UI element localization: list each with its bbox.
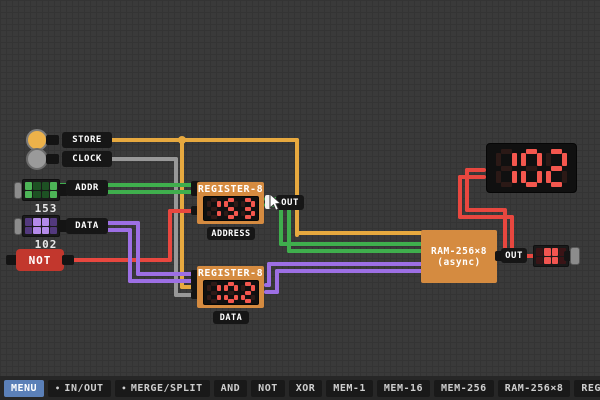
ram-title-line2: (async) [437, 257, 481, 268]
toolbar-button-xor[interactable]: XOR [289, 380, 323, 397]
wire-regout-bus[interactable] [279, 242, 423, 246]
toolbar-button-register-8[interactable]: REGISTER-8 [574, 380, 600, 397]
toolbar-button-ram-256-8[interactable]: RAM-256×8 [498, 380, 571, 397]
wire-data-bus[interactable] [128, 279, 199, 283]
bit-cell[interactable] [25, 191, 32, 199]
bit-cell [544, 257, 551, 265]
seven-seg-digit [207, 198, 221, 219]
toolbar-button-label: MEM-16 [384, 383, 423, 394]
toolbar-button-label: MEM-1 [333, 383, 366, 394]
toolbar-button-label: MENU [11, 383, 37, 394]
seven-seg-digit [521, 149, 542, 187]
bit-cell [536, 248, 543, 256]
bit-cell[interactable] [33, 227, 40, 235]
toolbar-button-in-out[interactable]: •IN/OUT [48, 380, 110, 397]
toolbar-button-label: XOR [296, 383, 316, 394]
toolbar-button-label: IN/OUT [64, 383, 103, 394]
bit-cell[interactable] [50, 191, 57, 199]
decimal-display[interactable] [486, 143, 577, 193]
data-side-pin[interactable] [14, 218, 22, 235]
collection-bullet-icon: • [55, 384, 60, 393]
wire-ram-out-riser[interactable] [465, 208, 505, 212]
bit-cell [544, 248, 551, 256]
wire-reg-to-ram-bus[interactable] [267, 262, 423, 266]
wire-ram-out-riser[interactable] [458, 175, 462, 219]
wire-regout-bus[interactable] [287, 249, 423, 253]
register-address-title: REGISTER-8 [197, 182, 264, 195]
wire-ram-out-riser[interactable] [458, 215, 514, 219]
ram-title-line1: RAM-256×8 [431, 246, 487, 257]
bit-cell[interactable] [33, 191, 40, 199]
data-bit-grid[interactable] [22, 215, 60, 237]
bit-cell[interactable] [50, 227, 57, 235]
store-label: STORE [62, 132, 112, 148]
bit-cell [552, 248, 559, 256]
not-gate[interactable]: NOT [16, 249, 64, 271]
addr-label: ADDR [66, 180, 108, 196]
toolbar-button-and[interactable]: AND [214, 380, 248, 397]
bit-cell[interactable] [33, 218, 40, 226]
toolbar-button-mem-16[interactable]: MEM-16 [377, 380, 430, 397]
seven-seg-digit [207, 282, 221, 303]
wire-store-branch[interactable] [180, 138, 184, 289]
seven-seg-digit [496, 149, 517, 187]
wire-junction[interactable] [178, 136, 186, 144]
store-pin[interactable] [46, 135, 59, 145]
register-data-caption: DATA [213, 311, 249, 324]
toolbar-button-mem-256[interactable]: MEM-256 [434, 380, 494, 397]
bit-cell[interactable] [42, 182, 49, 190]
seven-seg-digit [546, 149, 567, 187]
toolbar-button-not[interactable]: NOT [251, 380, 285, 397]
addr-value: 153 [24, 202, 68, 215]
toolbar-button-merge-split[interactable]: •MERGE/SPLIT [115, 380, 210, 397]
toolbar-button-label: AND [221, 383, 241, 394]
ram-out-label: OUT [501, 248, 527, 263]
bit-cell[interactable] [33, 182, 40, 190]
wire-store-main[interactable] [295, 138, 299, 237]
wire-data-bus[interactable] [136, 221, 140, 276]
wire-store-to-ram[interactable] [295, 231, 423, 235]
toolbar-button-mem-1[interactable]: MEM-1 [326, 380, 373, 397]
seven-seg-digit [224, 198, 238, 219]
bit-cell[interactable] [25, 182, 32, 190]
data-label: DATA [66, 218, 108, 234]
seven-seg-digit [241, 198, 255, 219]
logic-sim-canvas[interactable]: STORE CLOCK ADDR 153 DATA 102 NOT REGIST… [0, 0, 600, 400]
collection-bullet-icon: • [122, 384, 127, 393]
wire-data-bus[interactable] [128, 228, 132, 283]
ram-chip[interactable]: RAM-256×8 (async) [421, 230, 497, 283]
toolbar-button-label: MEM-256 [441, 383, 487, 394]
toolbar-button-menu[interactable]: MENU [4, 380, 44, 397]
bit-cell [536, 257, 543, 265]
bit-cell[interactable] [25, 218, 32, 226]
clock-label: CLOCK [62, 151, 112, 167]
seven-seg-digit [241, 282, 255, 303]
wire-ram-out-riser[interactable] [465, 168, 486, 172]
bit-cell[interactable] [42, 218, 49, 226]
bit-cell[interactable] [42, 191, 49, 199]
toolbar-button-label: NOT [258, 383, 278, 394]
wire-reg-to-ram-bus[interactable] [275, 269, 423, 273]
wire-ram-out-riser[interactable] [458, 175, 486, 179]
wire-regout-bus[interactable] [287, 203, 291, 253]
toolbar-button-label: RAM-256×8 [505, 383, 564, 394]
bit-cell[interactable] [42, 227, 49, 235]
wire-not-out[interactable] [168, 209, 172, 262]
register-address-caption: ADDRESS [207, 227, 255, 240]
wire-clock[interactable] [108, 157, 178, 161]
toolbar-button-label: REGISTER-8 [581, 383, 600, 394]
bit-cell[interactable] [25, 227, 32, 235]
wire-not-out[interactable] [66, 258, 172, 262]
clock-pin[interactable] [46, 154, 59, 164]
register-data-display [203, 280, 259, 305]
seven-seg-digit [224, 282, 238, 303]
register-data-title: REGISTER-8 [197, 266, 264, 279]
wire-store-main[interactable] [110, 138, 299, 142]
addr-bit-grid[interactable] [22, 179, 60, 201]
output-side-pin[interactable] [570, 247, 580, 265]
toolbar-button-label: MERGE/SPLIT [131, 383, 203, 394]
bottom-toolbar: MENU•IN/OUT•MERGE/SPLITANDNOTXORMEM-1MEM… [0, 376, 600, 400]
bit-cell [552, 257, 559, 265]
addr-side-pin[interactable] [14, 182, 22, 199]
bit-cell[interactable] [50, 182, 57, 190]
wire-data-bus[interactable] [136, 272, 199, 276]
clock-input-button[interactable] [26, 148, 48, 170]
register-address-display [203, 196, 259, 221]
not-output-pin[interactable] [62, 255, 74, 265]
wire-clock[interactable] [174, 157, 178, 297]
mouse-cursor [269, 194, 283, 212]
bit-cell[interactable] [50, 218, 57, 226]
